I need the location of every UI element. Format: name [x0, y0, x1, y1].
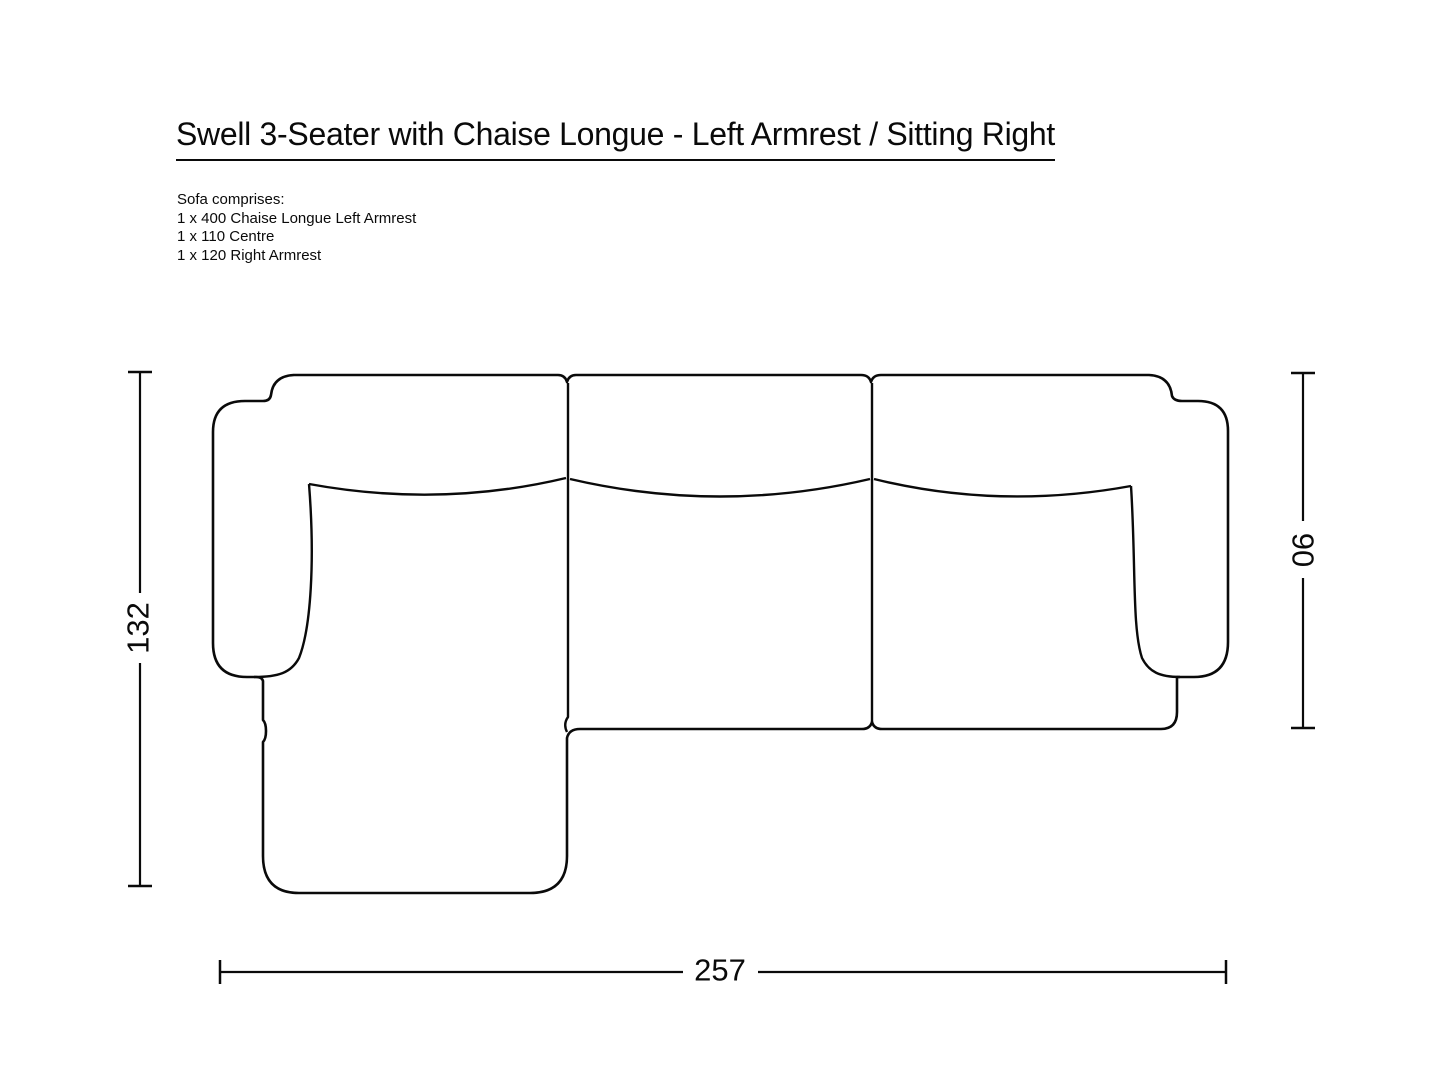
back-seam-chaise	[309, 478, 566, 495]
sofa-diagram	[0, 0, 1445, 1087]
back-seam-centre	[570, 479, 870, 497]
left-armrest-inner-edge	[254, 484, 312, 677]
product-drawing-page: Swell 3-Seater with Chaise Longue - Left…	[0, 0, 1445, 1087]
right-armrest-inner-edge	[1131, 486, 1180, 677]
back-cushion-seams	[309, 478, 1131, 497]
depth-dimension-label: 132	[123, 602, 154, 654]
sofa-outline	[213, 375, 1228, 893]
seat-depth-dimension-label: 90	[1288, 533, 1319, 567]
back-seam-right	[874, 479, 1131, 496]
armrest-inner-edges	[254, 484, 1180, 677]
section-divider-left	[565, 383, 568, 732]
section-dividers	[565, 383, 872, 732]
width-dimension-label: 257	[694, 955, 746, 986]
